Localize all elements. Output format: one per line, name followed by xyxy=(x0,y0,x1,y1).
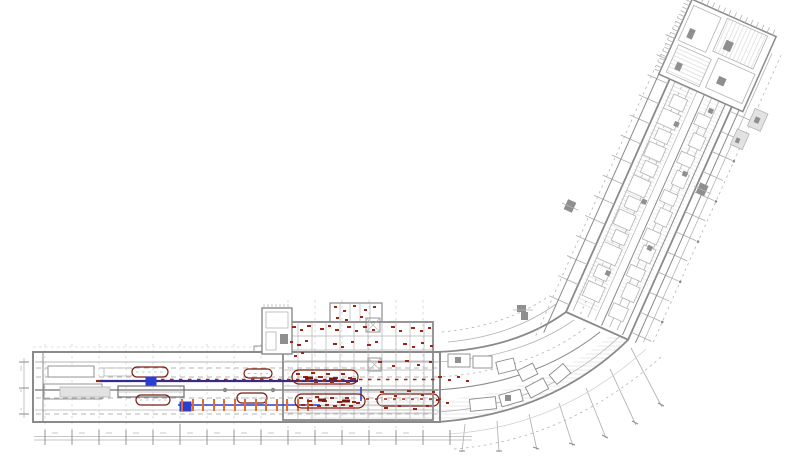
selection-marker-square xyxy=(146,377,156,385)
dimension-string-left xyxy=(19,358,29,418)
floor-plan-drawing xyxy=(0,0,799,457)
dimension-string-bottom xyxy=(34,424,472,445)
gate-satellite-stands xyxy=(730,105,768,153)
north-tower xyxy=(262,304,292,354)
cad-floor-plan-canvas xyxy=(0,0,799,457)
